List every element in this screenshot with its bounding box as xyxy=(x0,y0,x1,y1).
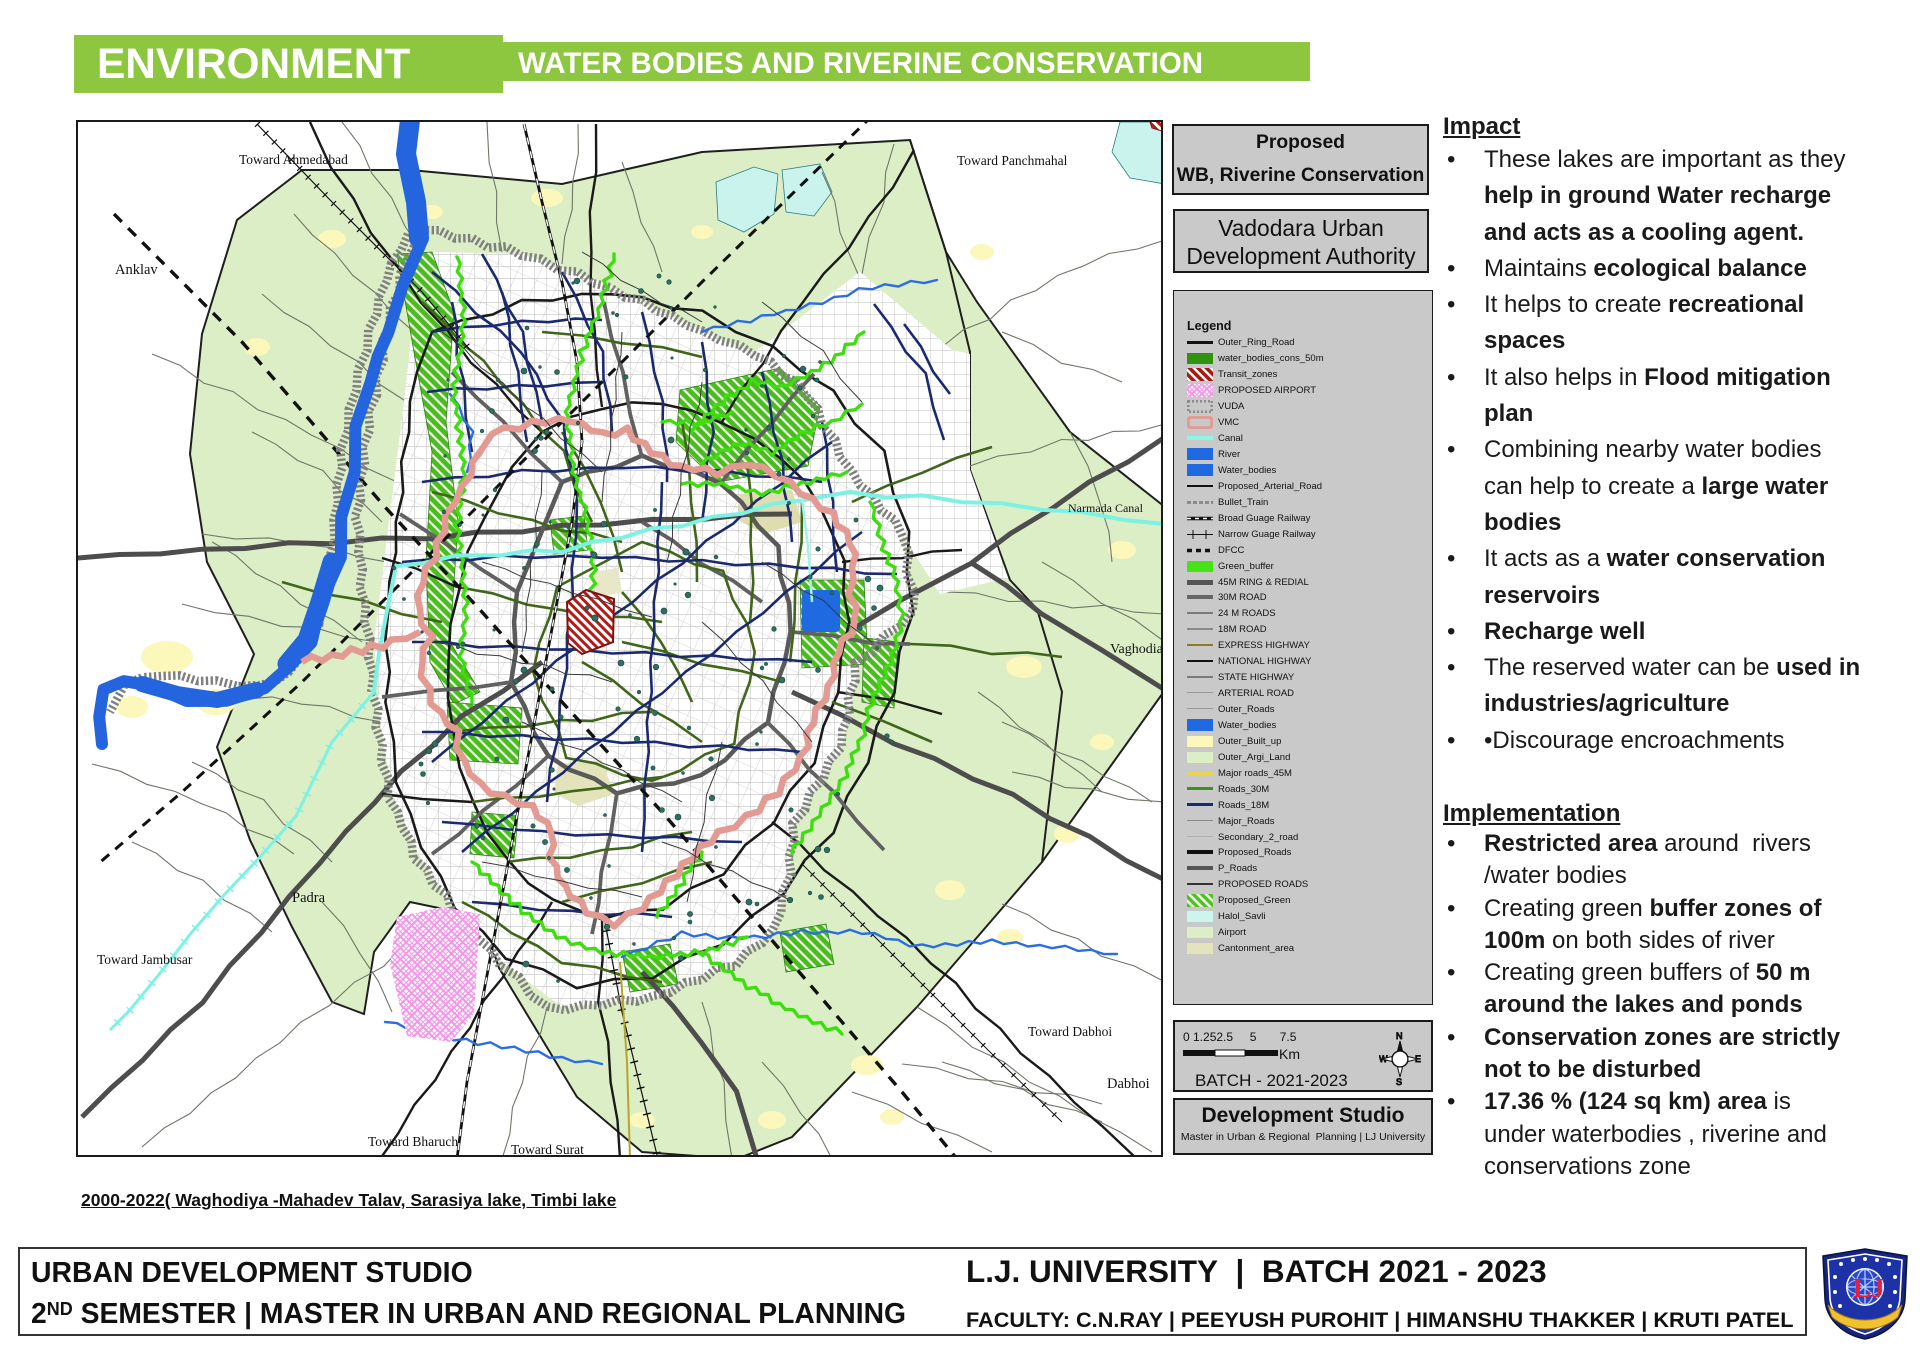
svg-text:Toward Ahmedabad: Toward Ahmedabad xyxy=(239,152,348,167)
svg-text:Padra: Padra xyxy=(292,890,326,906)
svg-text:Toward Jambusar: Toward Jambusar xyxy=(97,952,193,967)
svg-text:Narmada Canal: Narmada Canal xyxy=(1068,501,1144,515)
svg-text:Toward Dabhoi: Toward Dabhoi xyxy=(1028,1024,1112,1039)
svg-text:Anklav: Anklav xyxy=(115,262,158,278)
svg-text:Toward Surat: Toward Surat xyxy=(511,1142,584,1155)
svg-text:S: S xyxy=(1396,1077,1402,1086)
svg-text:Dabhoi: Dabhoi xyxy=(1107,1076,1150,1092)
svg-text:N: N xyxy=(1396,1031,1403,1041)
svg-text:LJ: LJ xyxy=(1853,1273,1885,1303)
svg-text:Toward Panchmahal: Toward Panchmahal xyxy=(957,153,1068,168)
svg-text:Toward Bharuch: Toward Bharuch xyxy=(368,1134,458,1149)
svg-text:Vaghodia: Vaghodia xyxy=(1110,642,1161,657)
